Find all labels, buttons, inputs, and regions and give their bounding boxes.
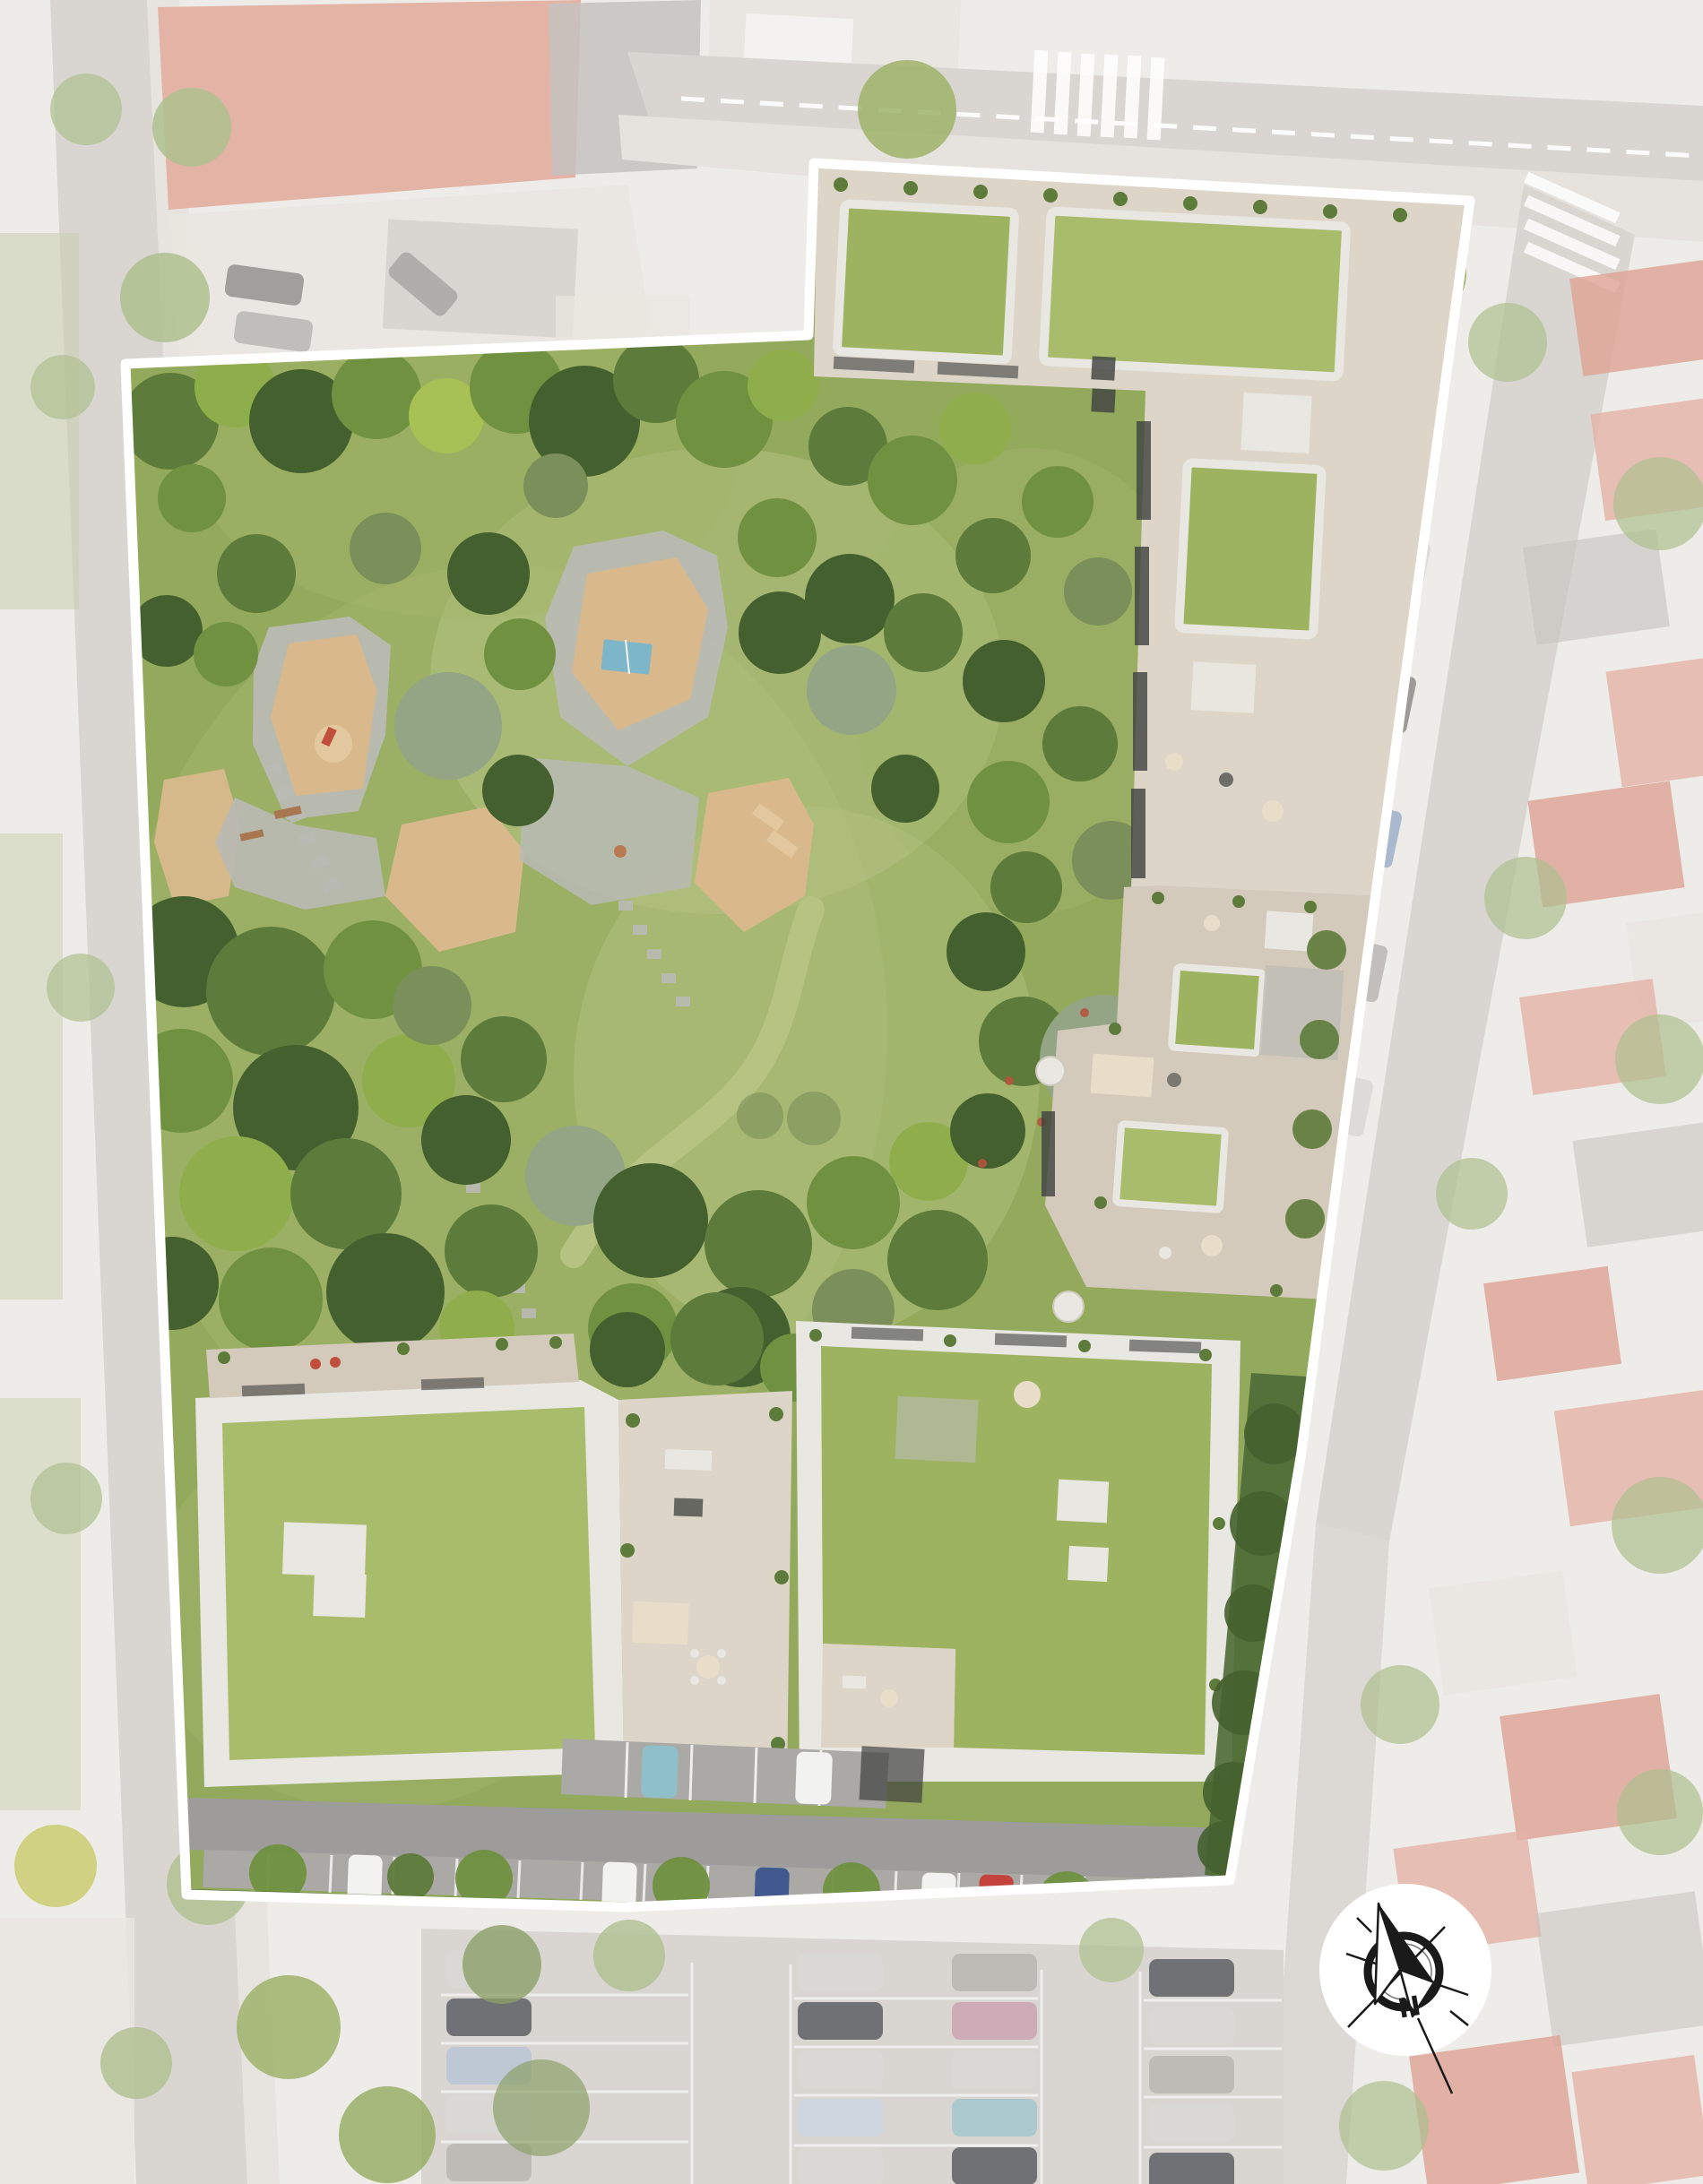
stepping-stone	[522, 1308, 536, 1318]
stepping-stone	[661, 973, 676, 983]
park-tree	[807, 1156, 900, 1249]
park-tree	[1022, 466, 1094, 538]
terrace-parasol	[880, 1689, 898, 1707]
terrace-chair	[690, 1676, 699, 1685]
faded-tree	[100, 2027, 172, 2099]
east-building	[1606, 656, 1703, 788]
garden-parasol	[1014, 1381, 1041, 1408]
faded-tree	[1484, 857, 1567, 939]
berry-accent	[978, 1159, 987, 1168]
stall-line	[690, 1745, 692, 1800]
terrace-parasol	[1262, 800, 1284, 822]
faded-car	[1149, 2104, 1234, 2142]
garage-entry	[859, 1746, 924, 1803]
faded-tree	[493, 2059, 590, 2156]
grass-mound	[737, 1092, 783, 1139]
west-green-strip	[0, 233, 79, 609]
roof-planter	[1078, 1340, 1091, 1352]
park-tree	[990, 851, 1062, 923]
terrace-table	[696, 1655, 720, 1679]
faded-car	[952, 1954, 1037, 1991]
faded-car	[798, 2002, 883, 2040]
park-tree	[705, 1190, 812, 1298]
roof-planter	[549, 1336, 562, 1349]
park-tree	[884, 593, 963, 672]
roof-planter	[1199, 1349, 1212, 1361]
faded-tree	[1615, 1014, 1703, 1104]
street-tree	[47, 954, 115, 1022]
faded-car	[952, 2050, 1037, 2088]
roof-planter	[1213, 1517, 1225, 1530]
balcony-strip	[1133, 672, 1147, 771]
west-green-strip	[0, 833, 63, 1299]
faded-tree	[237, 1975, 341, 2079]
park-tree	[887, 1210, 988, 1310]
green-roof	[1043, 211, 1346, 376]
east-building	[1429, 1570, 1577, 1696]
roof-planter	[1270, 1284, 1283, 1297]
park-tree	[738, 498, 817, 577]
faded-car	[1149, 2056, 1234, 2093]
skylight	[1091, 356, 1115, 380]
faded-car	[798, 2050, 883, 2088]
roof-planter	[1183, 196, 1197, 211]
park-tree	[593, 1163, 708, 1278]
roof-planter	[397, 1342, 410, 1355]
stall-line	[330, 1855, 332, 1893]
east-building	[1572, 1122, 1703, 1247]
park-tree	[748, 350, 819, 421]
roof-structure	[1241, 393, 1311, 453]
sandbox	[312, 722, 355, 765]
east-building	[1571, 2055, 1703, 2184]
central-plaza	[618, 1391, 792, 1782]
street-tree	[30, 1463, 102, 1534]
roof-planter	[834, 177, 848, 192]
park-tree	[326, 1233, 445, 1351]
park-tree	[445, 1204, 538, 1298]
terrace-furniture	[1204, 915, 1220, 931]
terrace-couch	[665, 1449, 713, 1471]
park-tree	[967, 761, 1050, 843]
faded-tree	[1339, 2081, 1429, 2171]
stepping-stone	[618, 901, 633, 911]
faded-tree	[1613, 457, 1703, 550]
stepping-stone	[633, 925, 647, 935]
faded-tree	[593, 1920, 665, 1991]
car-teal	[641, 1745, 679, 1798]
park-tree	[393, 966, 471, 1045]
park-tree	[950, 1093, 1025, 1169]
terrace-furniture	[1165, 753, 1183, 771]
park-tree	[447, 532, 530, 615]
roof-planter	[1094, 1196, 1107, 1209]
park-tree	[739, 591, 821, 674]
faded-tree	[1361, 1665, 1439, 1744]
street-tree	[152, 88, 231, 167]
east-building	[1534, 1891, 1703, 2047]
terrace-table	[674, 1498, 704, 1516]
balcony-strip	[242, 1384, 305, 1396]
park-tree	[350, 513, 421, 584]
stall-line	[626, 1742, 627, 1798]
faded-tree	[339, 2086, 436, 2183]
stall-line	[581, 1862, 583, 1900]
yellow-bush	[14, 1825, 97, 1907]
park-tree	[955, 518, 1031, 593]
faded-tree	[462, 1925, 541, 2004]
hedge-tree	[1285, 1199, 1325, 1239]
grass-mound	[787, 1092, 841, 1145]
faded-car	[798, 2099, 883, 2137]
green-roof	[1179, 462, 1321, 635]
faded-tree	[1468, 303, 1547, 382]
garden-parasol	[1053, 1291, 1084, 1322]
terrace-chair	[690, 1649, 699, 1658]
roof-planter	[626, 1413, 640, 1428]
terrace-couch	[843, 1676, 866, 1689]
roof-planter	[1113, 192, 1128, 206]
park-tree	[421, 1095, 511, 1185]
roof-planter	[1323, 204, 1337, 219]
roof-structure	[1068, 1546, 1109, 1582]
roof-planter	[1253, 200, 1267, 214]
roof-planter	[218, 1351, 230, 1364]
west-green-strip	[0, 1398, 81, 1810]
park-tree	[461, 1016, 547, 1102]
green-roof	[1171, 967, 1263, 1053]
stall-line	[755, 1748, 756, 1803]
faded-car	[952, 2002, 1037, 2040]
roof-structure	[282, 1522, 367, 1576]
park-tree	[1042, 706, 1118, 781]
faded-car	[1149, 2153, 1234, 2184]
faded-car	[952, 2099, 1037, 2137]
roof-planter	[620, 1543, 635, 1558]
park-tree	[963, 640, 1045, 722]
roof-planter	[1304, 901, 1317, 913]
park-tree	[871, 755, 939, 823]
terrace-furniture	[1159, 1247, 1171, 1259]
roof-planter	[1393, 208, 1407, 222]
park-tree	[219, 1247, 323, 1351]
aerial-site-plan: N	[0, 0, 1703, 2184]
balcony-strip	[1131, 789, 1145, 878]
park-tree	[482, 755, 554, 826]
park-tree	[1064, 557, 1132, 626]
park-tree	[939, 393, 1011, 464]
hedge-tree	[1307, 930, 1346, 970]
park-tree	[217, 534, 296, 613]
roof-pergola	[1091, 1054, 1154, 1098]
park-tree	[194, 622, 258, 686]
roof-planter	[973, 185, 988, 199]
park-tree	[868, 436, 957, 525]
park-tree	[290, 1138, 402, 1249]
stall-line	[518, 1860, 520, 1898]
terrace-chair	[330, 1357, 341, 1368]
roof-structure	[1265, 911, 1314, 952]
balcony-strip	[1137, 421, 1151, 520]
stepping-stone	[676, 997, 690, 1006]
faded-tree	[1079, 1918, 1144, 1982]
balcony-strip	[1042, 1111, 1055, 1196]
faded-tree	[1617, 1769, 1703, 1855]
roof-planter	[1232, 895, 1245, 908]
green-roof	[1116, 1124, 1225, 1210]
park-tree	[179, 1136, 294, 1251]
berry-accent	[1005, 1076, 1014, 1085]
skylight	[1091, 388, 1115, 412]
park-tree	[523, 453, 588, 518]
roof-planter	[903, 181, 918, 195]
green-roof	[222, 1407, 595, 1760]
terrace-chair	[717, 1649, 726, 1658]
park-tree	[807, 645, 896, 735]
park-tree	[206, 927, 335, 1056]
park-tree	[670, 1292, 764, 1386]
east-building	[1483, 1266, 1621, 1381]
faded-tree	[1436, 1158, 1508, 1230]
hedge-tree	[1300, 1020, 1339, 1059]
park-tree	[590, 1312, 665, 1387]
person	[614, 845, 627, 858]
garden-court	[895, 1396, 979, 1463]
roof-planter	[809, 1329, 822, 1342]
roof-pergola	[632, 1601, 689, 1644]
faded-car	[952, 2147, 1037, 2184]
site-plan-svg: N	[0, 0, 1703, 2184]
stepping-stone	[647, 949, 661, 959]
terrace-chair	[717, 1676, 726, 1685]
roof-planter	[944, 1334, 956, 1347]
terrace-furniture	[1219, 773, 1233, 787]
roof-planter	[769, 1407, 783, 1421]
roof-planter	[1043, 188, 1058, 203]
roof-pergola	[1191, 661, 1257, 713]
faded-car	[1149, 1959, 1234, 1997]
roof-planter	[496, 1338, 508, 1351]
roof-planter	[1109, 1023, 1121, 1035]
park-tree	[332, 350, 421, 439]
balcony-strip	[421, 1377, 484, 1390]
street-tree	[30, 355, 95, 419]
terrace-parasol	[1201, 1235, 1223, 1256]
roof-structure	[313, 1573, 367, 1618]
parking-tree	[387, 1853, 434, 1900]
berry-accent	[1080, 1008, 1089, 1017]
street-tree	[50, 73, 122, 145]
car-white	[795, 1751, 833, 1804]
terrace-chair	[310, 1359, 321, 1369]
balcony-strip	[1135, 547, 1149, 645]
park-tree	[394, 672, 502, 780]
hedge-tree	[1292, 1109, 1332, 1149]
terrace-parasol	[1036, 1057, 1065, 1085]
roof-planter	[1152, 892, 1164, 904]
stall-line	[644, 1864, 645, 1902]
street-tree	[858, 60, 956, 159]
roof-structure	[1057, 1480, 1109, 1524]
park-tree	[158, 464, 226, 532]
street-tree	[120, 253, 210, 342]
green-roof	[837, 203, 1015, 360]
faded-car	[798, 1954, 883, 1991]
roof-planter	[774, 1570, 789, 1584]
park-tree	[484, 618, 556, 690]
terrace-furniture	[1167, 1073, 1181, 1087]
east-building	[1569, 260, 1703, 376]
park-tree	[947, 912, 1025, 991]
faded-car	[798, 2147, 883, 2184]
faded-car	[446, 1998, 532, 2036]
faded-car	[1149, 2007, 1234, 2045]
